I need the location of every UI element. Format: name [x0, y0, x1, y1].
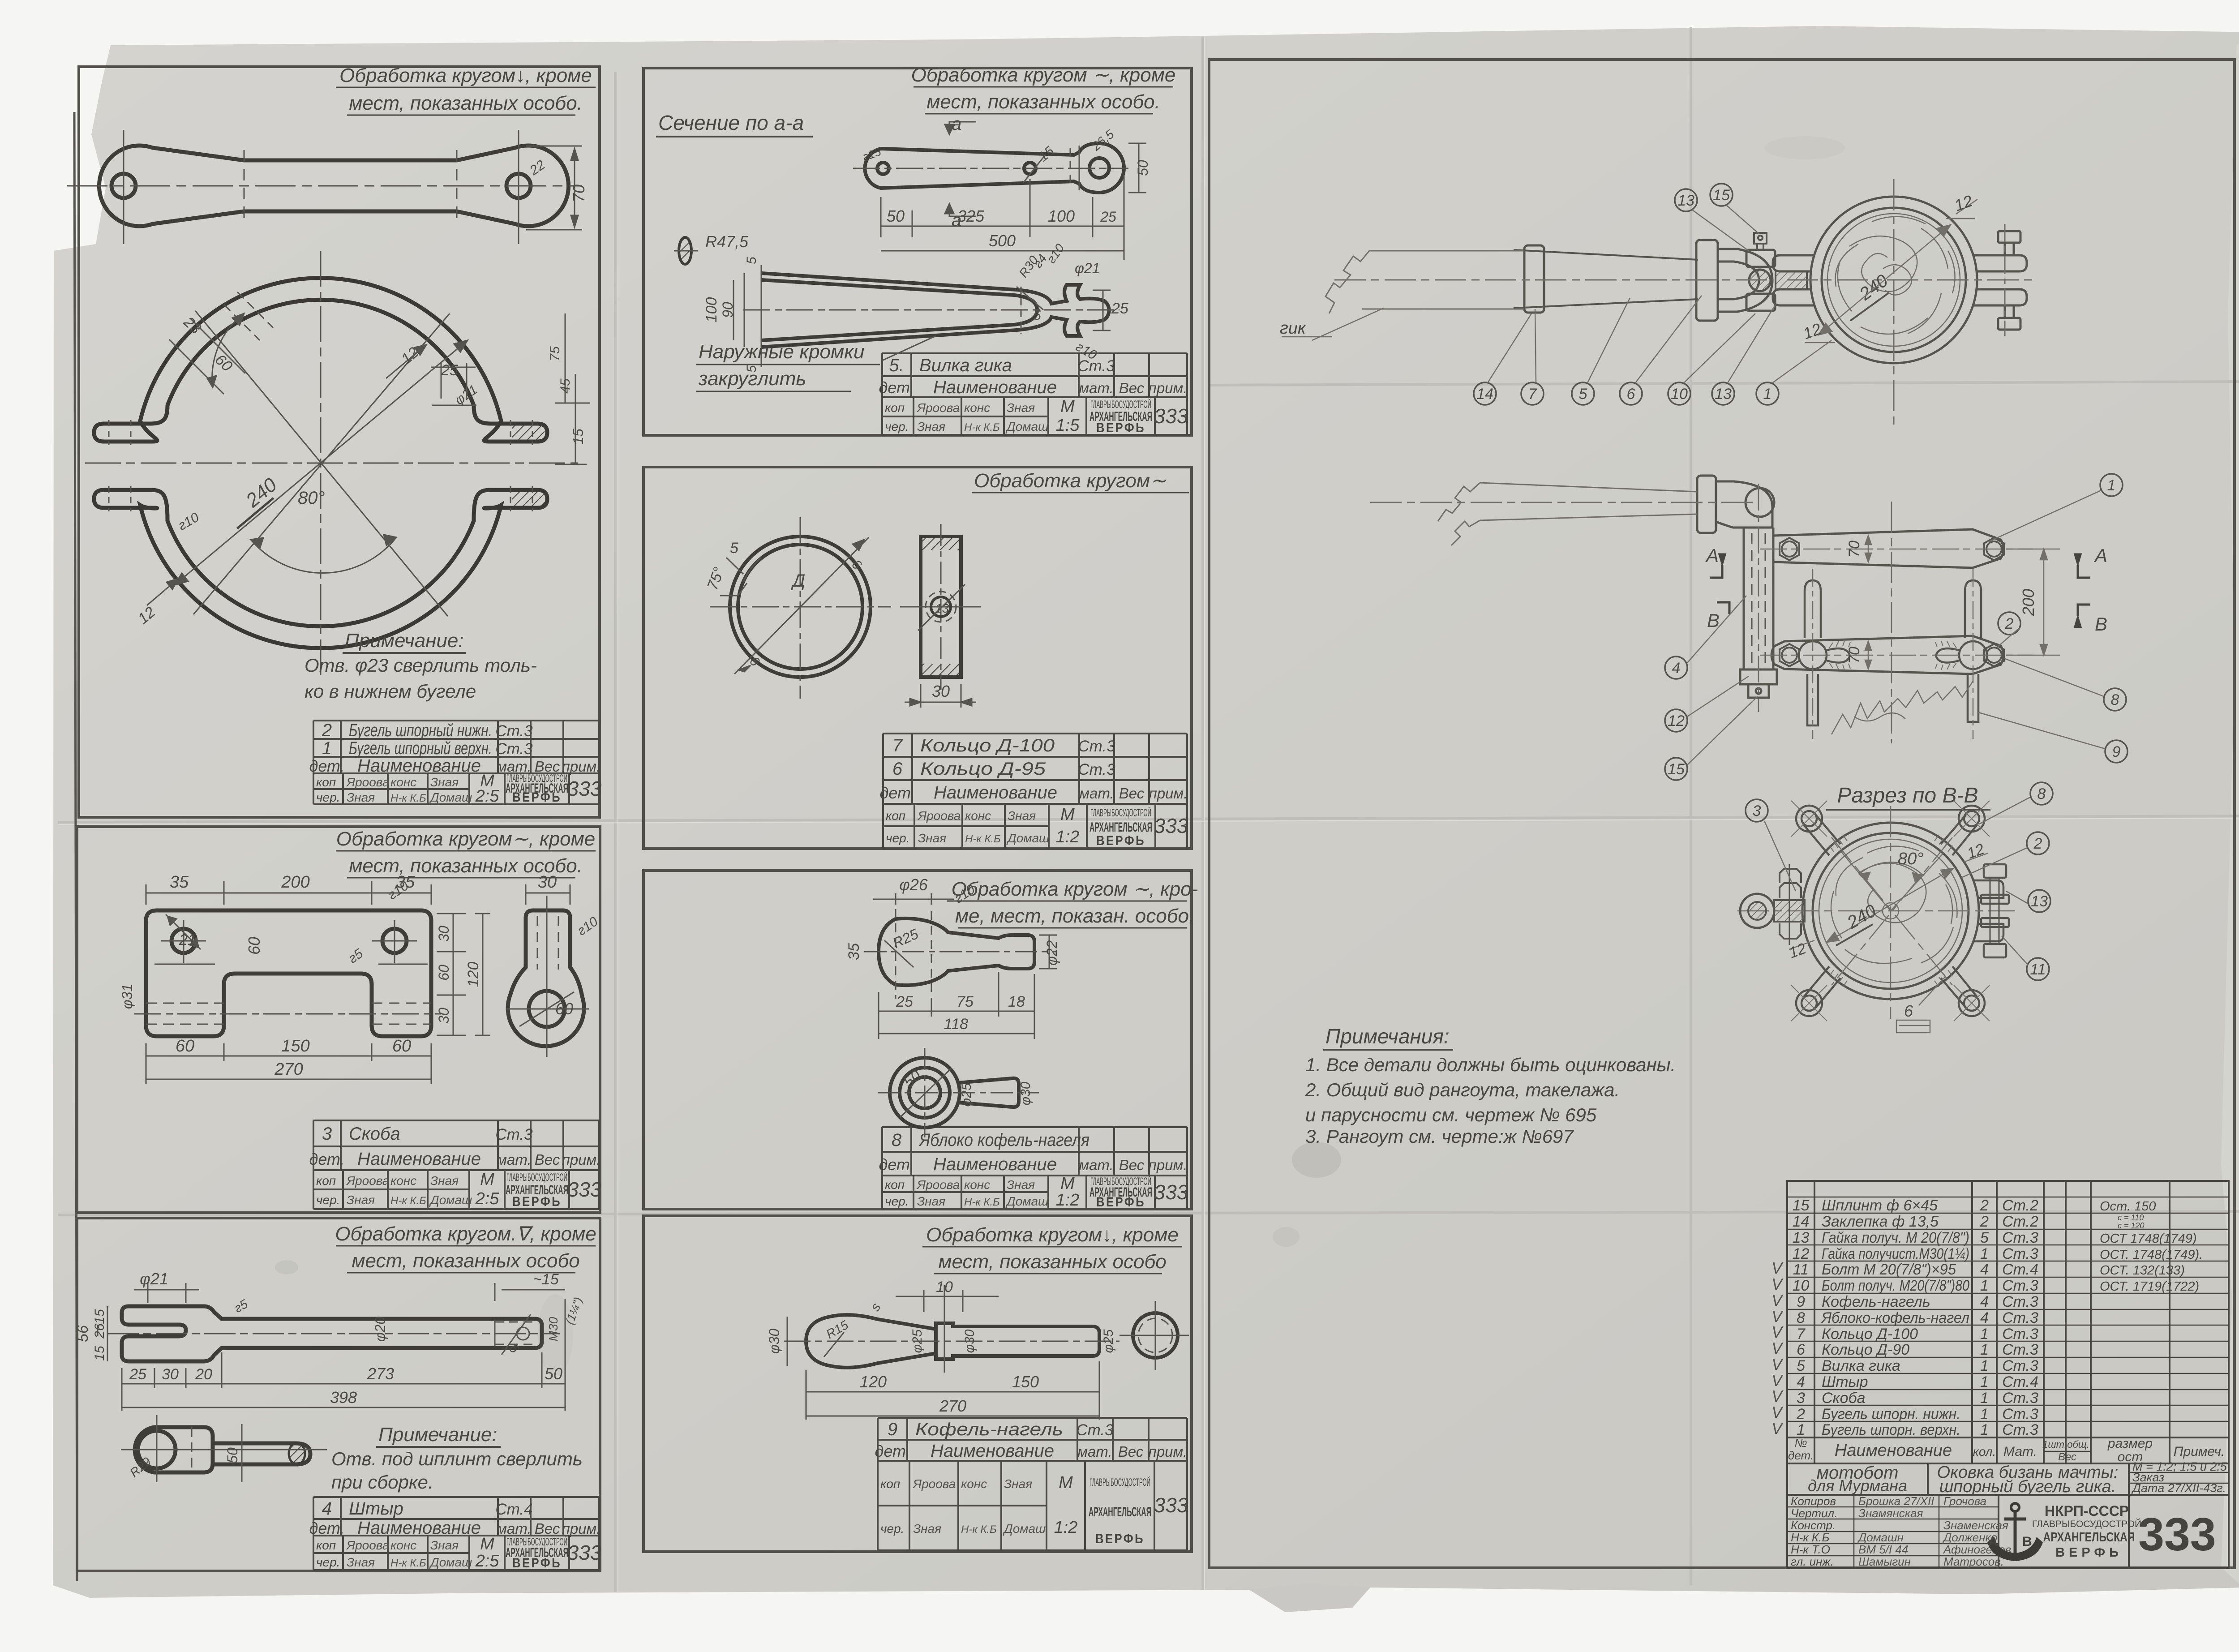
svg-text:чер.: чер.: [316, 1555, 340, 1569]
svg-text:1: 1: [1980, 1341, 1989, 1358]
svg-text:Н-к Т.О: Н-к Т.О: [1791, 1543, 1830, 1556]
svg-text:Ст.2: Ст.2: [2002, 1197, 2038, 1214]
svg-text:Зная: Зная: [430, 1538, 459, 1552]
svg-text:Ст.3: Ст.3: [2002, 1421, 2038, 1438]
svg-text:5: 5: [1797, 1357, 1805, 1374]
svg-text:и парусности см. чертеж № 695: и парусности см. чертеж № 695: [1305, 1104, 1597, 1125]
svg-text:прим.: прим.: [1149, 380, 1188, 396]
svg-text:Знамянская: Знамянская: [1858, 1506, 1923, 1520]
svg-text:15: 15: [1668, 761, 1685, 778]
svg-text:2: 2: [2033, 835, 2042, 852]
svg-text:15: 15: [92, 1309, 107, 1324]
svg-text:7: 7: [1528, 386, 1537, 403]
svg-text:Зная: Зная: [347, 790, 375, 804]
svg-text:1:2: 1:2: [1056, 1191, 1080, 1210]
svg-text:прим.: прим.: [562, 1151, 601, 1168]
svg-text:Н-к К.Б: Н-к К.Б: [964, 1196, 1000, 1208]
svg-text:1: 1: [1980, 1421, 1989, 1438]
svg-text:6: 6: [892, 759, 903, 779]
svg-text:Ст.3: Ст.3: [2002, 1406, 2038, 1423]
svg-text:120: 120: [860, 1373, 887, 1391]
svg-text:Зная: Зная: [1007, 401, 1035, 415]
svg-text:Отв. φ23 сверлить толь-: Отв. φ23 сверлить толь-: [305, 655, 537, 676]
svg-text:60: 60: [392, 1037, 411, 1056]
svg-text:Ст.4: Ст.4: [495, 1501, 532, 1518]
svg-text:чер.: чер.: [885, 420, 909, 433]
svg-text:Знаменская: Знаменская: [1943, 1519, 2008, 1532]
svg-text:Ст.3: Ст.3: [1077, 357, 1115, 375]
svg-text:Домаш: Домаш: [429, 1193, 472, 1207]
svg-text:Зная: Зная: [1007, 1178, 1035, 1192]
svg-text:Яроова: Яроова: [917, 809, 961, 823]
svg-text:6: 6: [1627, 386, 1635, 403]
svg-text:ГЛАВРЫБОСУДОСТРОЙ: ГЛАВРЫБОСУДОСТРОЙ: [1089, 1476, 1150, 1489]
svg-text:9: 9: [2112, 743, 2121, 760]
svg-text:коп: коп: [880, 1477, 900, 1491]
svg-text:ОСТ 1748(1749): ОСТ 1748(1749): [2100, 1231, 2197, 1246]
svg-text:Домаш: Домаш: [1005, 420, 1048, 433]
svg-text:Наименование: Наименование: [357, 756, 481, 776]
svg-text:A: A: [1705, 545, 1719, 566]
svg-text:Дата 27/XII-43г.: Дата 27/XII-43г.: [2131, 1481, 2226, 1495]
svg-text:Мат.: Мат.: [2003, 1444, 2037, 1459]
svg-text:мат.: мат.: [1079, 785, 1114, 802]
svg-text:Примеч.: Примеч.: [2174, 1444, 2225, 1459]
svg-text:чер.: чер.: [316, 790, 340, 804]
svg-text:мат.: мат.: [1079, 1157, 1113, 1173]
svg-text:200: 200: [281, 873, 309, 892]
svg-text:ГЛАВРЫБОСУДОСТРОЙ: ГЛАВРЫБОСУДОСТРОЙ: [2032, 1519, 2141, 1529]
svg-text:200: 200: [2019, 589, 2037, 616]
svg-text:дет.: дет.: [309, 1150, 344, 1168]
svg-text:Яблоко-кофель-нагел: Яблоко-кофель-нагел: [1821, 1309, 1969, 1326]
svg-text:13: 13: [935, 601, 949, 615]
svg-text:Ст.3: Ст.3: [2002, 1357, 2038, 1374]
svg-text:Кольцо Д-100: Кольцо Д-100: [1822, 1326, 1918, 1343]
svg-text:ГЛАВРЫБОСУДОСТРОЙ: ГЛАВРЫБОСУДОСТРОЙ: [1090, 807, 1151, 819]
svg-text:Ст.4: Ст.4: [2002, 1373, 2038, 1390]
svg-text:60: 60: [555, 1000, 573, 1018]
svg-text:333: 333: [1154, 1493, 1188, 1517]
svg-text:Зная: Зная: [430, 1174, 459, 1188]
svg-text:14: 14: [1793, 1213, 1810, 1230]
svg-text:1:5: 1:5: [1056, 416, 1080, 435]
svg-text:Вес: Вес: [535, 1520, 560, 1537]
svg-text:конс: конс: [390, 775, 416, 789]
svg-text:11: 11: [1793, 1261, 1809, 1278]
svg-text:2:5: 2:5: [475, 787, 500, 806]
svg-text:3: 3: [322, 1124, 332, 1144]
svg-text:Обработка кругом.∇, кроме: Обработка кругом.∇, кроме: [335, 1223, 596, 1245]
svg-text:1: 1: [1980, 1326, 1989, 1343]
svg-text:Зная: Зная: [1004, 1477, 1032, 1491]
svg-text:ме, мест, показан. особо.: ме, мест, показан. особо.: [955, 905, 1194, 927]
svg-text:Шамыгин: Шамыгин: [1858, 1555, 1911, 1568]
svg-text:V: V: [1771, 1275, 1784, 1293]
svg-text:Гайка получ. М 20(7/8"): Гайка получ. М 20(7/8"): [1822, 1229, 1969, 1246]
svg-text:1: 1: [1980, 1373, 1989, 1390]
svg-text:ко в нижнем бугеле: ко в нижнем бугеле: [305, 681, 476, 702]
svg-text:М: М: [1059, 1473, 1073, 1492]
svg-text:Ст.3: Ст.3: [2002, 1229, 2038, 1246]
svg-text:13: 13: [1677, 192, 1694, 209]
svg-text:В: В: [2095, 614, 2107, 635]
svg-text:Обработка кругом↓, кроме: Обработка кругом↓, кроме: [339, 64, 592, 86]
svg-text:А: А: [1988, 1534, 1998, 1549]
svg-text:90: 90: [720, 302, 736, 318]
svg-text:М: М: [480, 1170, 494, 1189]
svg-text:φ25: φ25: [1101, 1329, 1116, 1353]
svg-text:Зная: Зная: [347, 1555, 375, 1569]
svg-text:1:2: 1:2: [1054, 1518, 1078, 1537]
svg-text:φ20: φ20: [372, 1317, 388, 1342]
svg-text:Д: Д: [791, 571, 805, 591]
svg-text:Отв. под шплинт сверлить: Отв. под шплинт сверлить: [331, 1448, 583, 1469]
svg-text:ВЕРФЬ: ВЕРФЬ: [512, 1556, 562, 1570]
svg-text:Яроова: Яроова: [346, 1174, 389, 1188]
svg-text:Болт получ. М20(7/8")80: Болт получ. М20(7/8")80: [1822, 1277, 1969, 1294]
svg-text:10: 10: [936, 1279, 953, 1296]
svg-text:1. Все детали должны быть оцин: 1. Все детали должны быть оцинкованы.: [1305, 1054, 1676, 1075]
svg-text:398: 398: [330, 1388, 357, 1407]
svg-text:1: 1: [1980, 1390, 1989, 1407]
svg-text:φ30: φ30: [962, 1329, 977, 1353]
svg-text:9: 9: [888, 1420, 897, 1439]
svg-text:Сечение по а-а: Сечение по а-а: [658, 111, 804, 134]
svg-text:шпорный бугель гика.: шпорный бугель гика.: [1939, 1477, 2116, 1496]
svg-text:30: 30: [436, 926, 452, 942]
svg-text:V: V: [1771, 1355, 1784, 1373]
svg-text:Ст.3: Ст.3: [1078, 738, 1115, 755]
svg-text:гл. инж.: гл. инж.: [1791, 1555, 1834, 1568]
svg-text:коп: коп: [885, 1178, 905, 1192]
svg-text:500: 500: [989, 232, 1016, 250]
svg-text:5: 5: [744, 257, 759, 264]
svg-text:Домаш: Домаш: [1003, 1522, 1046, 1536]
svg-text:2: 2: [1796, 1406, 1805, 1423]
svg-text:мат.: мат.: [1077, 1443, 1112, 1460]
svg-text:Бугель шпорный нижн.: Бугель шпорный нижн.: [349, 721, 492, 740]
svg-text:ВЕРФЬ: ВЕРФЬ: [512, 1194, 562, 1209]
svg-text:25: 25: [1111, 300, 1128, 317]
svg-text:1:2: 1:2: [1056, 828, 1080, 846]
svg-text:прим.: прим.: [1149, 785, 1188, 802]
svg-text:М: М: [480, 1535, 494, 1553]
svg-text:Ст.3: Ст.3: [1078, 761, 1115, 778]
svg-text:9: 9: [1797, 1293, 1805, 1310]
svg-text:мат.: мат.: [497, 1520, 531, 1537]
svg-text:270: 270: [939, 1397, 966, 1415]
svg-text:φ25: φ25: [910, 1329, 925, 1353]
svg-text:Обработка кругом↓, кроме: Обработка кругом↓, кроме: [926, 1224, 1179, 1246]
svg-text:4: 4: [1980, 1309, 1989, 1326]
svg-text:13: 13: [2031, 893, 2048, 910]
svg-text:5: 5: [1980, 1229, 1989, 1246]
svg-text:при сборке.: при сборке.: [331, 1472, 433, 1493]
svg-text:1: 1: [2107, 477, 2116, 494]
svg-text:мест, показанных особо: мест, показанных особо: [352, 1250, 579, 1272]
svg-text:Ст.3: Ст.3: [2002, 1341, 2038, 1358]
svg-text:Примечания:: Примечания:: [1325, 1025, 1450, 1048]
svg-text:АРХАНГЕЛЬСКАЯ: АРХАНГЕЛЬСКАЯ: [1089, 1505, 1151, 1519]
svg-text:с = 120: с = 120: [2118, 1221, 2145, 1230]
svg-text:АРХАНГЕЛЬСКАЯ: АРХАНГЕЛЬСКАЯ: [1089, 820, 1152, 835]
svg-text:Зная: Зная: [917, 1194, 945, 1208]
svg-text:333: 333: [567, 1541, 602, 1564]
svg-text:3: 3: [1797, 1390, 1805, 1407]
svg-text:3. Рангоут см. черте:ж №697: 3. Рангоут см. черте:ж №697: [1305, 1126, 1574, 1147]
svg-text:ВЕРФЬ: ВЕРФЬ: [1095, 1532, 1145, 1546]
svg-text:Ст.3: Ст.3: [495, 740, 533, 758]
svg-text:Констр.: Констр.: [1791, 1519, 1836, 1532]
svg-text:2: 2: [1980, 1197, 1989, 1214]
svg-text:Кольцо Д-90: Кольцо Д-90: [1822, 1341, 1909, 1358]
svg-text:конс: конс: [390, 1174, 416, 1188]
svg-text:70: 70: [1846, 647, 1863, 664]
svg-text:Вилка гика: Вилка гика: [919, 356, 1012, 375]
svg-text:Вес: Вес: [1119, 1157, 1145, 1173]
svg-text:4: 4: [322, 1499, 332, 1519]
svg-text:кол.: кол.: [1973, 1445, 1996, 1459]
svg-text:φ25: φ25: [959, 1083, 974, 1107]
svg-text:ВМ 5/I 44: ВМ 5/I 44: [1858, 1543, 1908, 1556]
svg-text:коп: коп: [316, 775, 336, 789]
svg-text:14: 14: [1476, 386, 1493, 403]
svg-text:Вилка гика: Вилка гика: [1822, 1357, 1900, 1374]
svg-text:Зная: Зная: [913, 1522, 941, 1536]
svg-text:Шплинт ф 6×45: Шплинт ф 6×45: [1822, 1197, 1938, 1214]
svg-text:4: 4: [1980, 1293, 1989, 1310]
svg-text:прим.: прим.: [1149, 1157, 1188, 1173]
svg-text:13: 13: [1715, 386, 1732, 403]
svg-text:φ31: φ31: [119, 984, 135, 1009]
svg-text:мест, показанных особо: мест, показанных особо: [938, 1251, 1166, 1273]
svg-text:Штыр: Штыр: [349, 1499, 403, 1519]
svg-text:Зная: Зная: [918, 831, 946, 845]
svg-text:25: 25: [441, 362, 458, 379]
svg-text:V: V: [1771, 1291, 1784, 1309]
svg-text:Вес: Вес: [1118, 1443, 1144, 1460]
svg-text:ОСТ. 132(133): ОСТ. 132(133): [2100, 1263, 2185, 1278]
svg-text:Наименование: Наименование: [934, 783, 1057, 802]
svg-text:75: 75: [548, 346, 562, 361]
svg-text:Заклепка ф 13,5: Заклепка ф 13,5: [1822, 1213, 1939, 1230]
svg-text:Вес: Вес: [2058, 1451, 2076, 1463]
svg-text:4: 4: [1797, 1373, 1805, 1390]
svg-text:100: 100: [1048, 207, 1075, 225]
svg-text:270: 270: [274, 1060, 303, 1079]
svg-text:50: 50: [887, 207, 905, 225]
svg-text:Яроова: Яроова: [916, 401, 960, 415]
svg-text:1шт.: 1шт.: [2042, 1439, 2067, 1450]
svg-text:15: 15: [570, 429, 586, 445]
svg-text:Зная: Зная: [917, 420, 945, 433]
svg-text:дет.: дет.: [1788, 1449, 1814, 1462]
svg-text:35: 35: [845, 943, 862, 960]
svg-text:26: 26: [92, 1323, 107, 1339]
svg-text:Кофель-нагель: Кофель-нагель: [1822, 1293, 1930, 1310]
svg-text:Яблоко кофель-нагеля: Яблоко кофель-нагеля: [918, 1130, 1089, 1150]
svg-text:чер.: чер.: [885, 1194, 909, 1208]
svg-text:Копиров: Копиров: [1791, 1494, 1836, 1508]
svg-text:60: 60: [436, 965, 452, 981]
svg-text:М: М: [1060, 1174, 1075, 1193]
svg-text:2: 2: [1980, 1213, 1989, 1230]
svg-text:φ21: φ21: [140, 1270, 168, 1288]
svg-text:Наименование: Наименование: [357, 1518, 481, 1538]
svg-text:ВЕРФЬ: ВЕРФЬ: [1096, 421, 1145, 435]
svg-text:Яроова: Яроова: [912, 1477, 956, 1491]
svg-text:Обработка кругом ∼, кроме: Обработка кругом ∼, кроме: [911, 64, 1176, 86]
svg-text:мест, показанных особо.: мест, показанных особо.: [349, 92, 583, 114]
svg-text:70: 70: [570, 185, 588, 202]
svg-text:общ.: общ.: [2067, 1439, 2089, 1450]
svg-text:120: 120: [465, 962, 482, 987]
svg-text:V: V: [1771, 1387, 1784, 1405]
svg-text:30: 30: [538, 873, 557, 892]
svg-text:50: 50: [1135, 160, 1151, 176]
svg-text:Бугель шпорн. нижн.: Бугель шпорн. нижн.: [1822, 1406, 1960, 1423]
svg-text:R47,5: R47,5: [705, 232, 749, 251]
svg-text:Яроова: Яроова: [346, 1538, 389, 1552]
svg-text:8: 8: [2037, 785, 2046, 802]
svg-text:35: 35: [170, 873, 189, 892]
svg-text:21: 21: [179, 931, 196, 948]
svg-text:25: 25: [129, 1366, 146, 1383]
svg-text:коп: коп: [885, 401, 905, 415]
svg-text:60: 60: [176, 1037, 194, 1056]
svg-text:Ст.3: Ст.3: [495, 722, 533, 740]
svg-text:333: 333: [567, 777, 602, 800]
svg-text:273: 273: [367, 1365, 394, 1383]
svg-text:Н-к К.Б: Н-к К.Б: [390, 792, 426, 804]
svg-text:ВЕРФЬ: ВЕРФЬ: [1096, 1195, 1145, 1210]
svg-text:25: 25: [1100, 209, 1116, 225]
svg-text:56: 56: [74, 1325, 91, 1342]
svg-text:для Мурмана: для Мурмана: [1808, 1476, 1907, 1495]
svg-text:Наименование: Наименование: [357, 1149, 481, 1169]
svg-text:25: 25: [896, 993, 913, 1010]
svg-text:коп: коп: [316, 1174, 336, 1188]
svg-text:дет.: дет.: [875, 1442, 910, 1460]
svg-text:2: 2: [322, 721, 332, 740]
svg-text:а: а: [952, 114, 961, 134]
svg-text:7: 7: [1797, 1326, 1806, 1343]
svg-text:Матросов.: Матросов.: [1943, 1555, 2004, 1568]
svg-text:Домаш: Домаш: [1006, 831, 1049, 845]
svg-text:1: 1: [1763, 386, 1772, 403]
svg-text:φ30: φ30: [766, 1329, 782, 1354]
svg-text:12: 12: [1668, 712, 1685, 729]
svg-text:мат.: мат.: [1079, 380, 1113, 396]
svg-text:размер: размер: [2107, 1436, 2153, 1451]
svg-text:2:5: 2:5: [475, 1552, 500, 1570]
svg-text:Домаш: Домаш: [429, 790, 472, 804]
svg-text:333: 333: [1154, 404, 1188, 428]
svg-text:ОСТ. 1719(1722): ОСТ. 1719(1722): [2100, 1279, 2199, 1294]
svg-text:Домаш: Домаш: [1005, 1194, 1048, 1208]
svg-text:Примечание:: Примечание:: [345, 630, 464, 652]
svg-text:ВЕРФЬ: ВЕРФЬ: [1096, 833, 1145, 848]
svg-text:Обработка кругом∼, кроме: Обработка кругом∼, кроме: [336, 828, 596, 850]
svg-text:333: 333: [1154, 1180, 1188, 1204]
svg-text:Ст.3: Ст.3: [2002, 1277, 2038, 1294]
svg-text:11: 11: [2030, 961, 2046, 978]
svg-text:Брошка 27/XII: Брошка 27/XII: [1858, 1494, 1934, 1508]
svg-text:50: 50: [224, 1447, 240, 1463]
svg-text:Зная: Зная: [1008, 809, 1036, 823]
svg-text:Ст.3: Ст.3: [2002, 1245, 2038, 1262]
svg-text:дет.: дет.: [309, 757, 344, 775]
svg-text:коп: коп: [316, 1538, 336, 1552]
svg-text:20: 20: [195, 1366, 212, 1383]
svg-text:гик: гик: [1280, 319, 1307, 338]
svg-text:15: 15: [92, 1346, 107, 1361]
svg-text:Скоба: Скоба: [349, 1124, 400, 1144]
svg-text:3: 3: [1753, 802, 1761, 820]
svg-text:~15: ~15: [533, 1271, 559, 1288]
svg-text:Ст.3: Ст.3: [2002, 1326, 2038, 1343]
svg-text:Зная: Зная: [430, 775, 459, 789]
svg-text:конс: конс: [390, 1538, 416, 1552]
svg-text:чер.: чер.: [316, 1193, 340, 1207]
svg-text:A: A: [2093, 545, 2107, 566]
svg-text:333: 333: [567, 1178, 602, 1201]
svg-text:φ22: φ22: [1044, 940, 1060, 966]
svg-text:Наименование: Наименование: [1835, 1441, 1952, 1460]
svg-text:5: 5: [730, 540, 738, 557]
svg-text:4: 4: [1672, 660, 1681, 677]
svg-text:Вес: Вес: [535, 1151, 560, 1168]
svg-text:чер.: чер.: [886, 831, 909, 845]
svg-text:70: 70: [1846, 541, 1863, 558]
svg-text:прим.: прим.: [562, 1520, 601, 1537]
svg-text:Бугель шпорный верхн.: Бугель шпорный верхн.: [349, 738, 492, 758]
svg-text:5: 5: [1034, 308, 1041, 323]
svg-text:15: 15: [1713, 187, 1730, 204]
svg-text:30: 30: [162, 1366, 179, 1383]
svg-text:V: V: [1771, 1419, 1784, 1437]
svg-text:V: V: [1771, 1323, 1784, 1341]
svg-text:1: 1: [1980, 1406, 1989, 1423]
svg-text:Вес: Вес: [1119, 785, 1145, 802]
svg-text:1: 1: [1980, 1357, 1989, 1374]
svg-text:Кольцо Д-95: Кольцо Д-95: [920, 759, 1046, 779]
svg-text:Ст.3: Ст.3: [495, 1126, 533, 1143]
svg-text:150: 150: [281, 1037, 309, 1056]
svg-text:Яроова: Яроова: [346, 775, 389, 789]
svg-text:чер.: чер.: [880, 1522, 904, 1536]
svg-text:Гайка получист.М30(1¼): Гайка получист.М30(1¼): [1822, 1245, 1969, 1262]
svg-text:80°: 80°: [298, 488, 325, 508]
svg-text:Обработка кругом ∼, кро-: Обработка кругом ∼, кро-: [952, 878, 1198, 900]
svg-text:Вес: Вес: [1119, 380, 1145, 396]
svg-text:АРХАНГЕЛЬСКАЯ: АРХАНГЕЛЬСКАЯ: [2043, 1530, 2135, 1545]
svg-text:конс: конс: [964, 1178, 990, 1192]
svg-text:Грочова: Грочова: [1943, 1494, 1986, 1508]
svg-text:М: М: [1060, 397, 1075, 416]
svg-text:1: 1: [1980, 1245, 1989, 1262]
svg-text:№: №: [1794, 1436, 1807, 1450]
svg-text:закруглить: закруглить: [698, 368, 806, 390]
svg-text:6: 6: [1904, 1002, 1913, 1020]
svg-text:Бугель шпорн. верхн.: Бугель шпорн. верхн.: [1822, 1421, 1960, 1438]
svg-text:1: 1: [322, 738, 332, 758]
svg-text:1: 1: [1980, 1277, 1989, 1294]
svg-text:2:5: 2:5: [475, 1189, 500, 1208]
svg-text:конс: конс: [961, 1477, 987, 1491]
svg-text:дет.: дет.: [879, 784, 915, 802]
